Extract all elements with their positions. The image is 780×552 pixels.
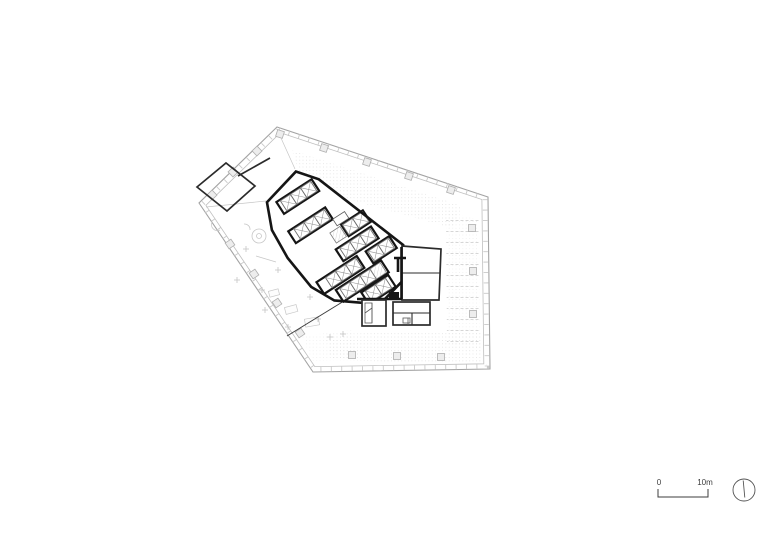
column — [470, 268, 477, 275]
furniture-desk — [268, 289, 279, 297]
north-arrow-icon — [733, 479, 755, 501]
furniture-round-table — [252, 229, 266, 243]
column — [252, 146, 262, 156]
column — [272, 298, 282, 308]
upper-left-room-walls — [197, 163, 255, 211]
column — [249, 269, 259, 279]
column — [405, 172, 414, 181]
column — [276, 130, 285, 139]
column — [469, 225, 476, 232]
north-arrow-needle — [743, 481, 745, 498]
furniture-desk — [304, 317, 319, 327]
floor-plan-sheet: 0 10m — [0, 0, 780, 552]
column — [349, 352, 356, 359]
column — [438, 354, 445, 361]
furniture-round-table-center — [257, 234, 262, 239]
scale-bar-line — [658, 489, 708, 497]
column — [394, 353, 401, 360]
column — [447, 186, 456, 195]
column — [363, 158, 372, 167]
furniture-arc — [244, 224, 250, 230]
furniture-desk — [284, 305, 297, 315]
floor-plan-drawing: 0 10m — [0, 0, 780, 552]
scale-bar: 0 10m — [657, 478, 713, 497]
column — [470, 311, 477, 318]
scale-bar-start-label: 0 — [657, 478, 662, 487]
column — [320, 144, 329, 153]
wall-pier — [389, 292, 399, 298]
column — [225, 239, 235, 249]
furniture-line — [256, 256, 276, 262]
scale-bar-end-label: 10m — [697, 478, 713, 487]
